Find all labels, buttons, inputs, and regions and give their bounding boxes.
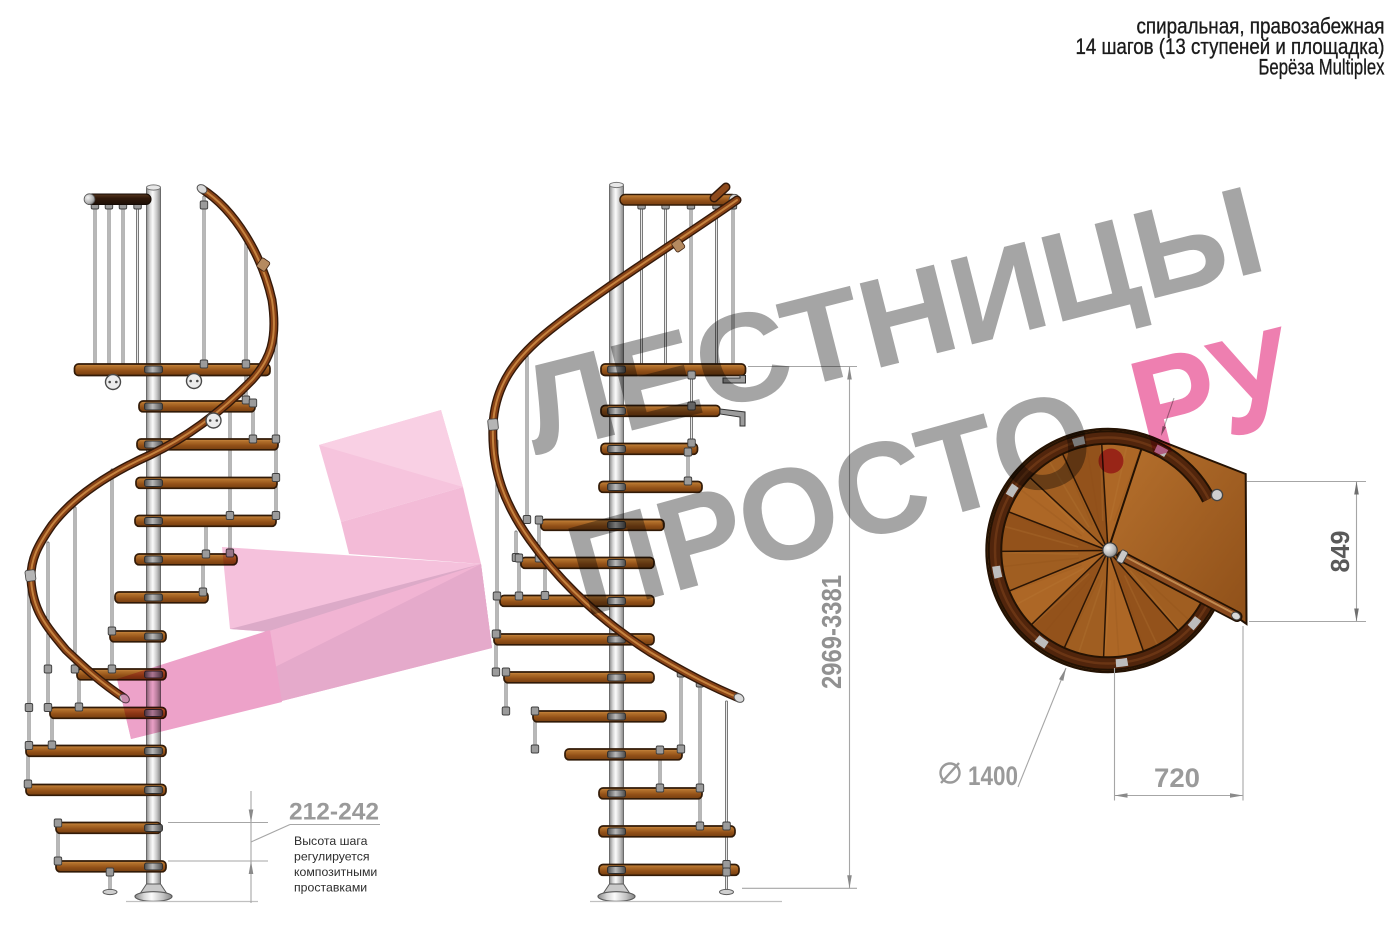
- svg-text:212-242: 212-242: [289, 799, 379, 826]
- svg-text:Берёза Multiplex: Берёза Multiplex: [1259, 55, 1385, 80]
- svg-text:720: 720: [1154, 763, 1200, 793]
- svg-text:композитными: композитными: [294, 865, 377, 879]
- svg-text:1400: 1400: [968, 761, 1018, 791]
- svg-text:проставками: проставками: [294, 881, 367, 895]
- svg-text:Высота шага: Высота шага: [294, 834, 368, 848]
- svg-text:2969-3381: 2969-3381: [816, 575, 847, 689]
- svg-text:849: 849: [1325, 531, 1355, 573]
- svg-text:регулируется: регулируется: [294, 850, 370, 864]
